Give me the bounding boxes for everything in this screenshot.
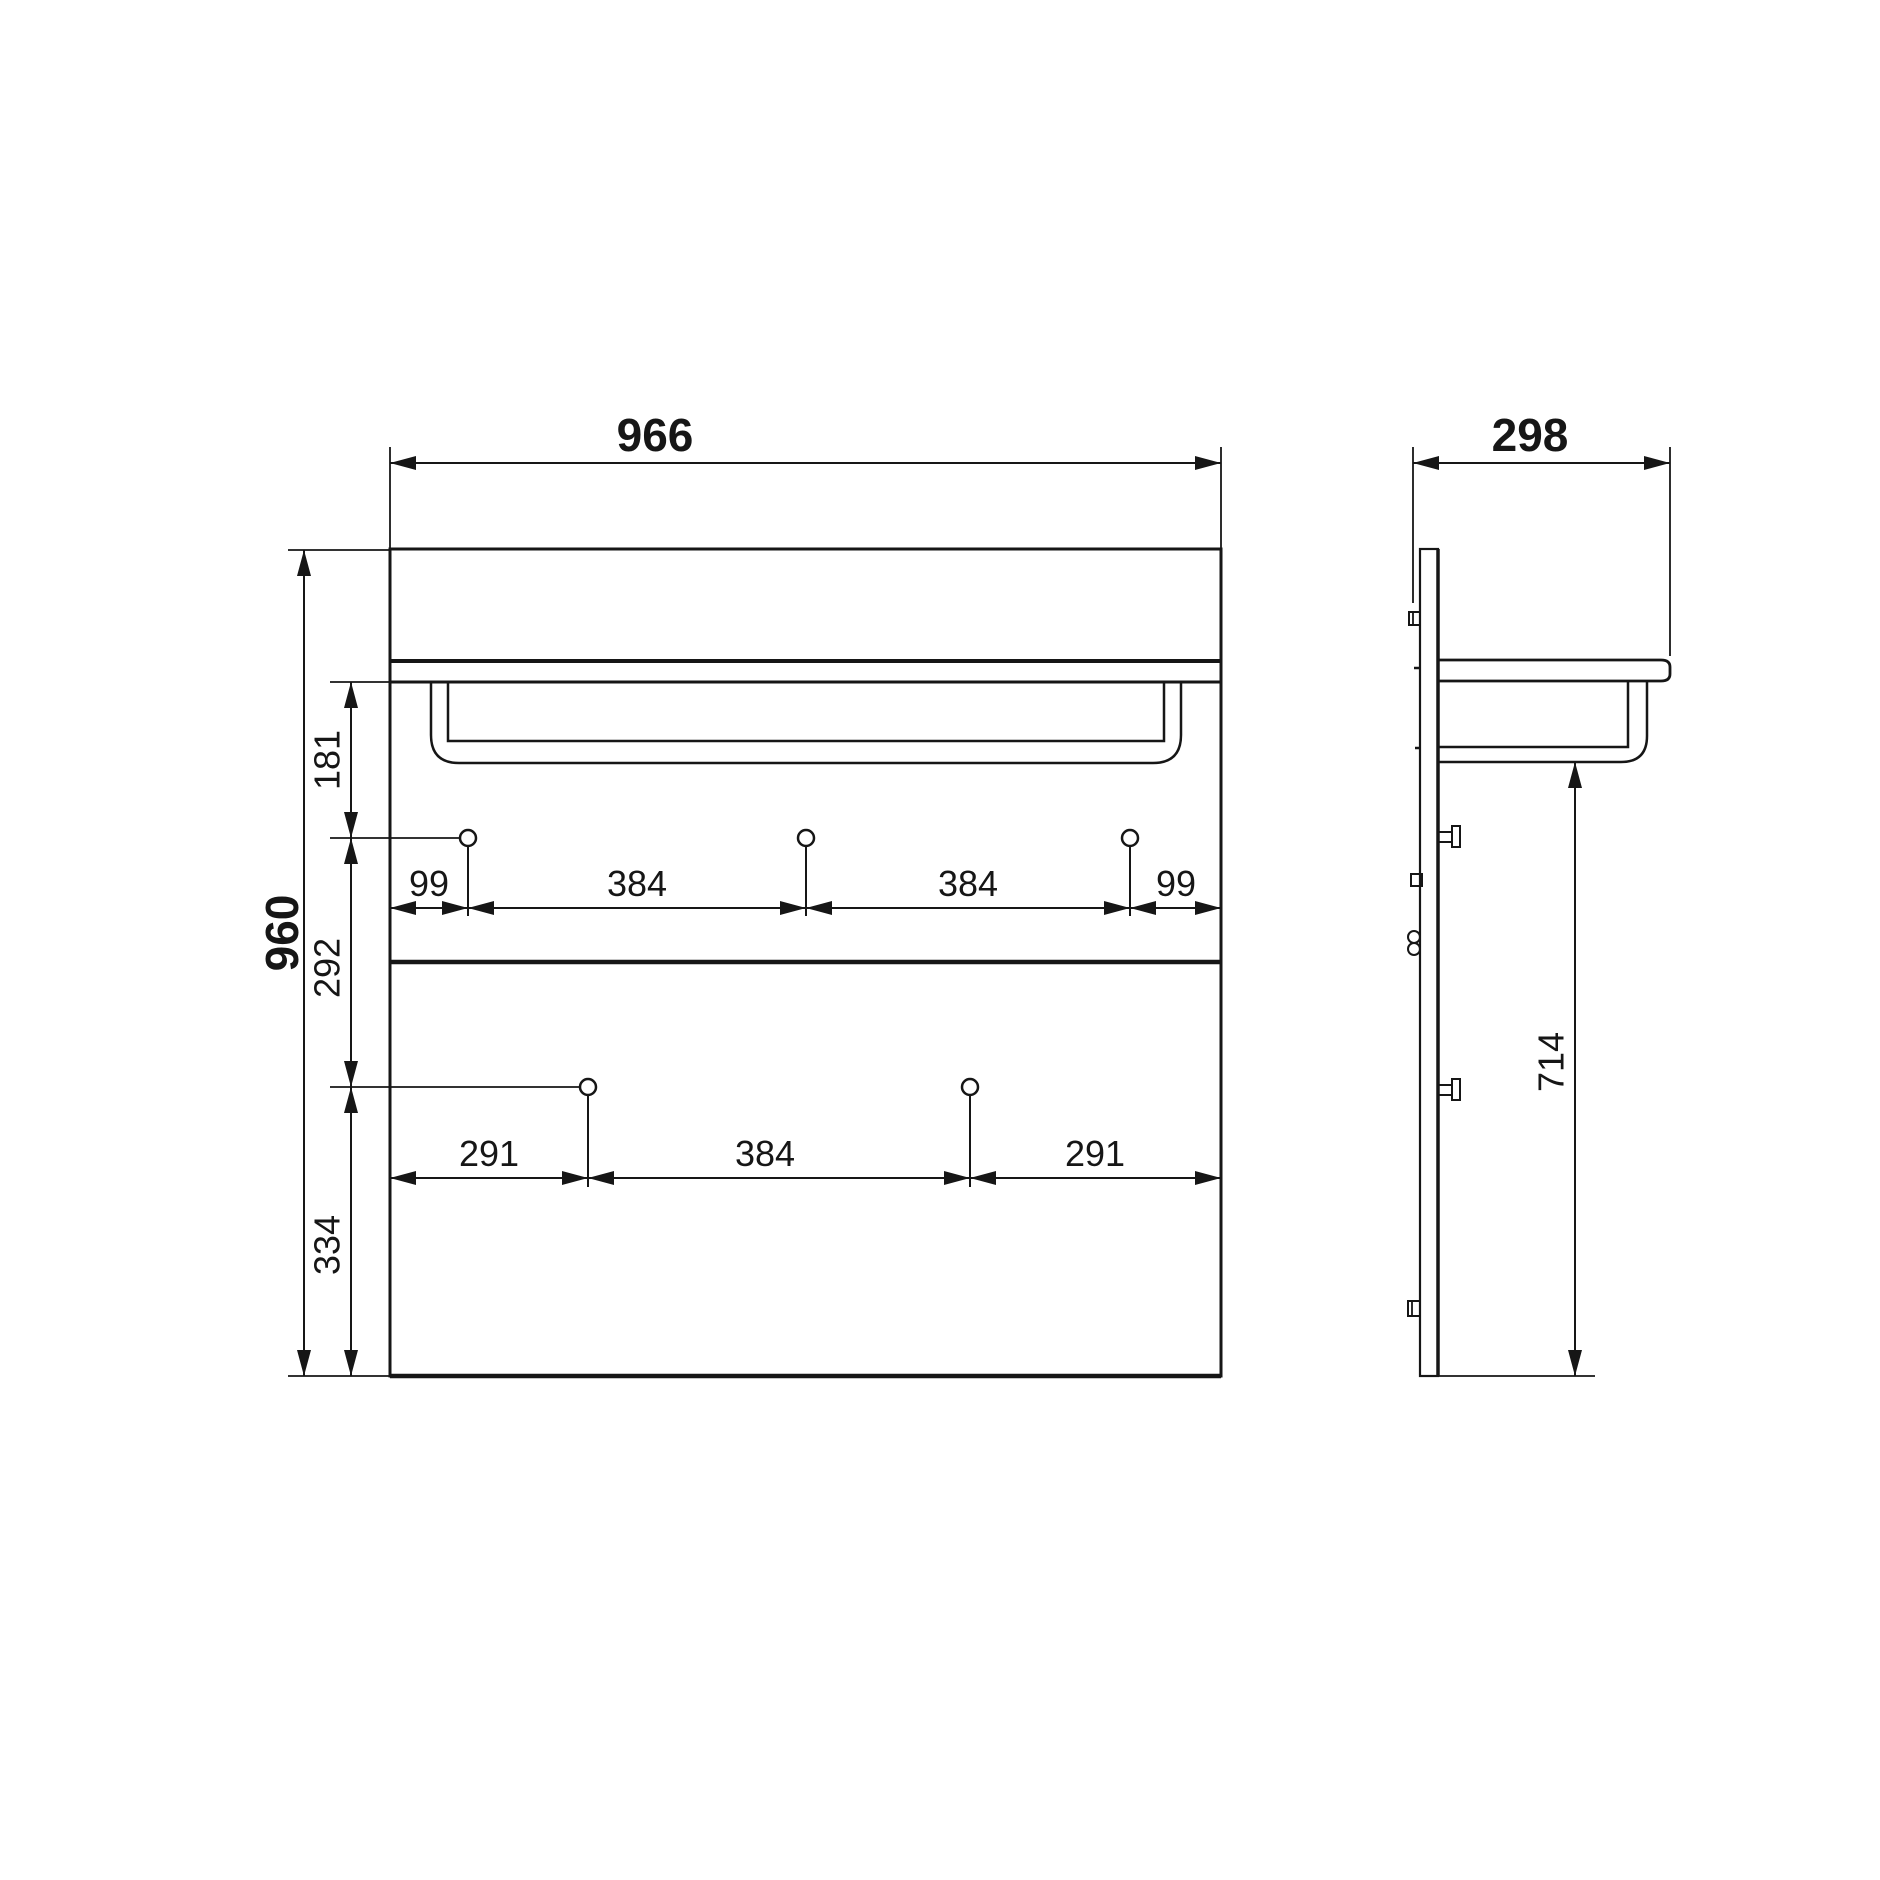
arrowhead [344,1087,358,1113]
dim-label-181: 181 [307,730,348,790]
side-shelf [1438,660,1670,681]
side-hook-lower [1438,1079,1460,1100]
arrowhead [806,901,832,915]
wall-mount-fitting-bottom [1408,1301,1420,1316]
keyhole-fitting [1408,931,1420,955]
coat-hook-marker [1122,830,1138,846]
arrowhead [344,1061,358,1087]
side-view: 298 714 [1408,409,1670,1376]
dim-label-384-top-right: 384 [938,863,998,904]
hanging-rail-inner [448,682,1164,741]
arrowhead [297,1350,311,1376]
side-panel-board [1420,549,1438,1376]
arrowhead [390,456,416,470]
coat-hook-marker [798,830,814,846]
dim-label-291-left: 291 [459,1133,519,1174]
arrowhead [1568,1350,1582,1376]
arrowhead [588,1171,614,1185]
coat-hook-marker [580,1079,596,1095]
coat-hook-marker [460,830,476,846]
hanging-rail-outer [431,682,1181,763]
arrowhead [1568,762,1582,788]
arrowhead [468,901,494,915]
arrowhead [1195,456,1221,470]
wall-mount-fitting-top [1409,612,1420,625]
arrowhead [1195,901,1221,915]
dim-label-384-bottom: 384 [735,1133,795,1174]
arrowhead [944,1171,970,1185]
front-view: 966 960 181 292 334 99 384 384 99 291 38… [256,409,1221,1376]
dim-label-292: 292 [307,938,348,998]
arrowhead [390,1171,416,1185]
arrowhead [1644,456,1670,470]
arrowhead [1104,901,1130,915]
arrowhead [780,901,806,915]
arrowhead [344,682,358,708]
arrowhead [1195,1171,1221,1185]
side-rail-inner [1438,681,1628,747]
dim-label-384-top-left: 384 [607,863,667,904]
arrowhead [297,550,311,576]
keyhole-circle [1408,931,1420,943]
dim-label-291-right: 291 [1065,1133,1125,1174]
technical-drawing-page: 966 960 181 292 334 99 384 384 99 291 38… [0,0,1880,1880]
dim-label-overall-height: 960 [256,895,308,972]
hook-cap [1452,826,1460,847]
dim-label-334: 334 [307,1215,348,1275]
dim-label-99-right: 99 [1156,863,1196,904]
hook-cap [1452,1079,1460,1100]
fitting-body [1408,1301,1420,1316]
arrowhead [344,838,358,864]
dim-label-714: 714 [1531,1032,1572,1092]
dim-label-overall-width: 966 [617,409,694,461]
arrowhead [1130,901,1156,915]
side-rail-outer [1438,681,1647,762]
coat-rack-dimension-drawing: 966 960 181 292 334 99 384 384 99 291 38… [0,0,1880,1880]
arrowhead [344,1350,358,1376]
arrowhead [562,1171,588,1185]
dim-label-99-left: 99 [409,863,449,904]
arrowhead [970,1171,996,1185]
fitting-body [1409,612,1420,625]
coat-hook-marker [962,1079,978,1095]
keyhole-circle [1408,943,1420,955]
dim-label-depth: 298 [1492,409,1569,461]
side-hook-upper [1438,826,1460,847]
arrowhead [344,812,358,838]
arrowhead [1413,456,1439,470]
